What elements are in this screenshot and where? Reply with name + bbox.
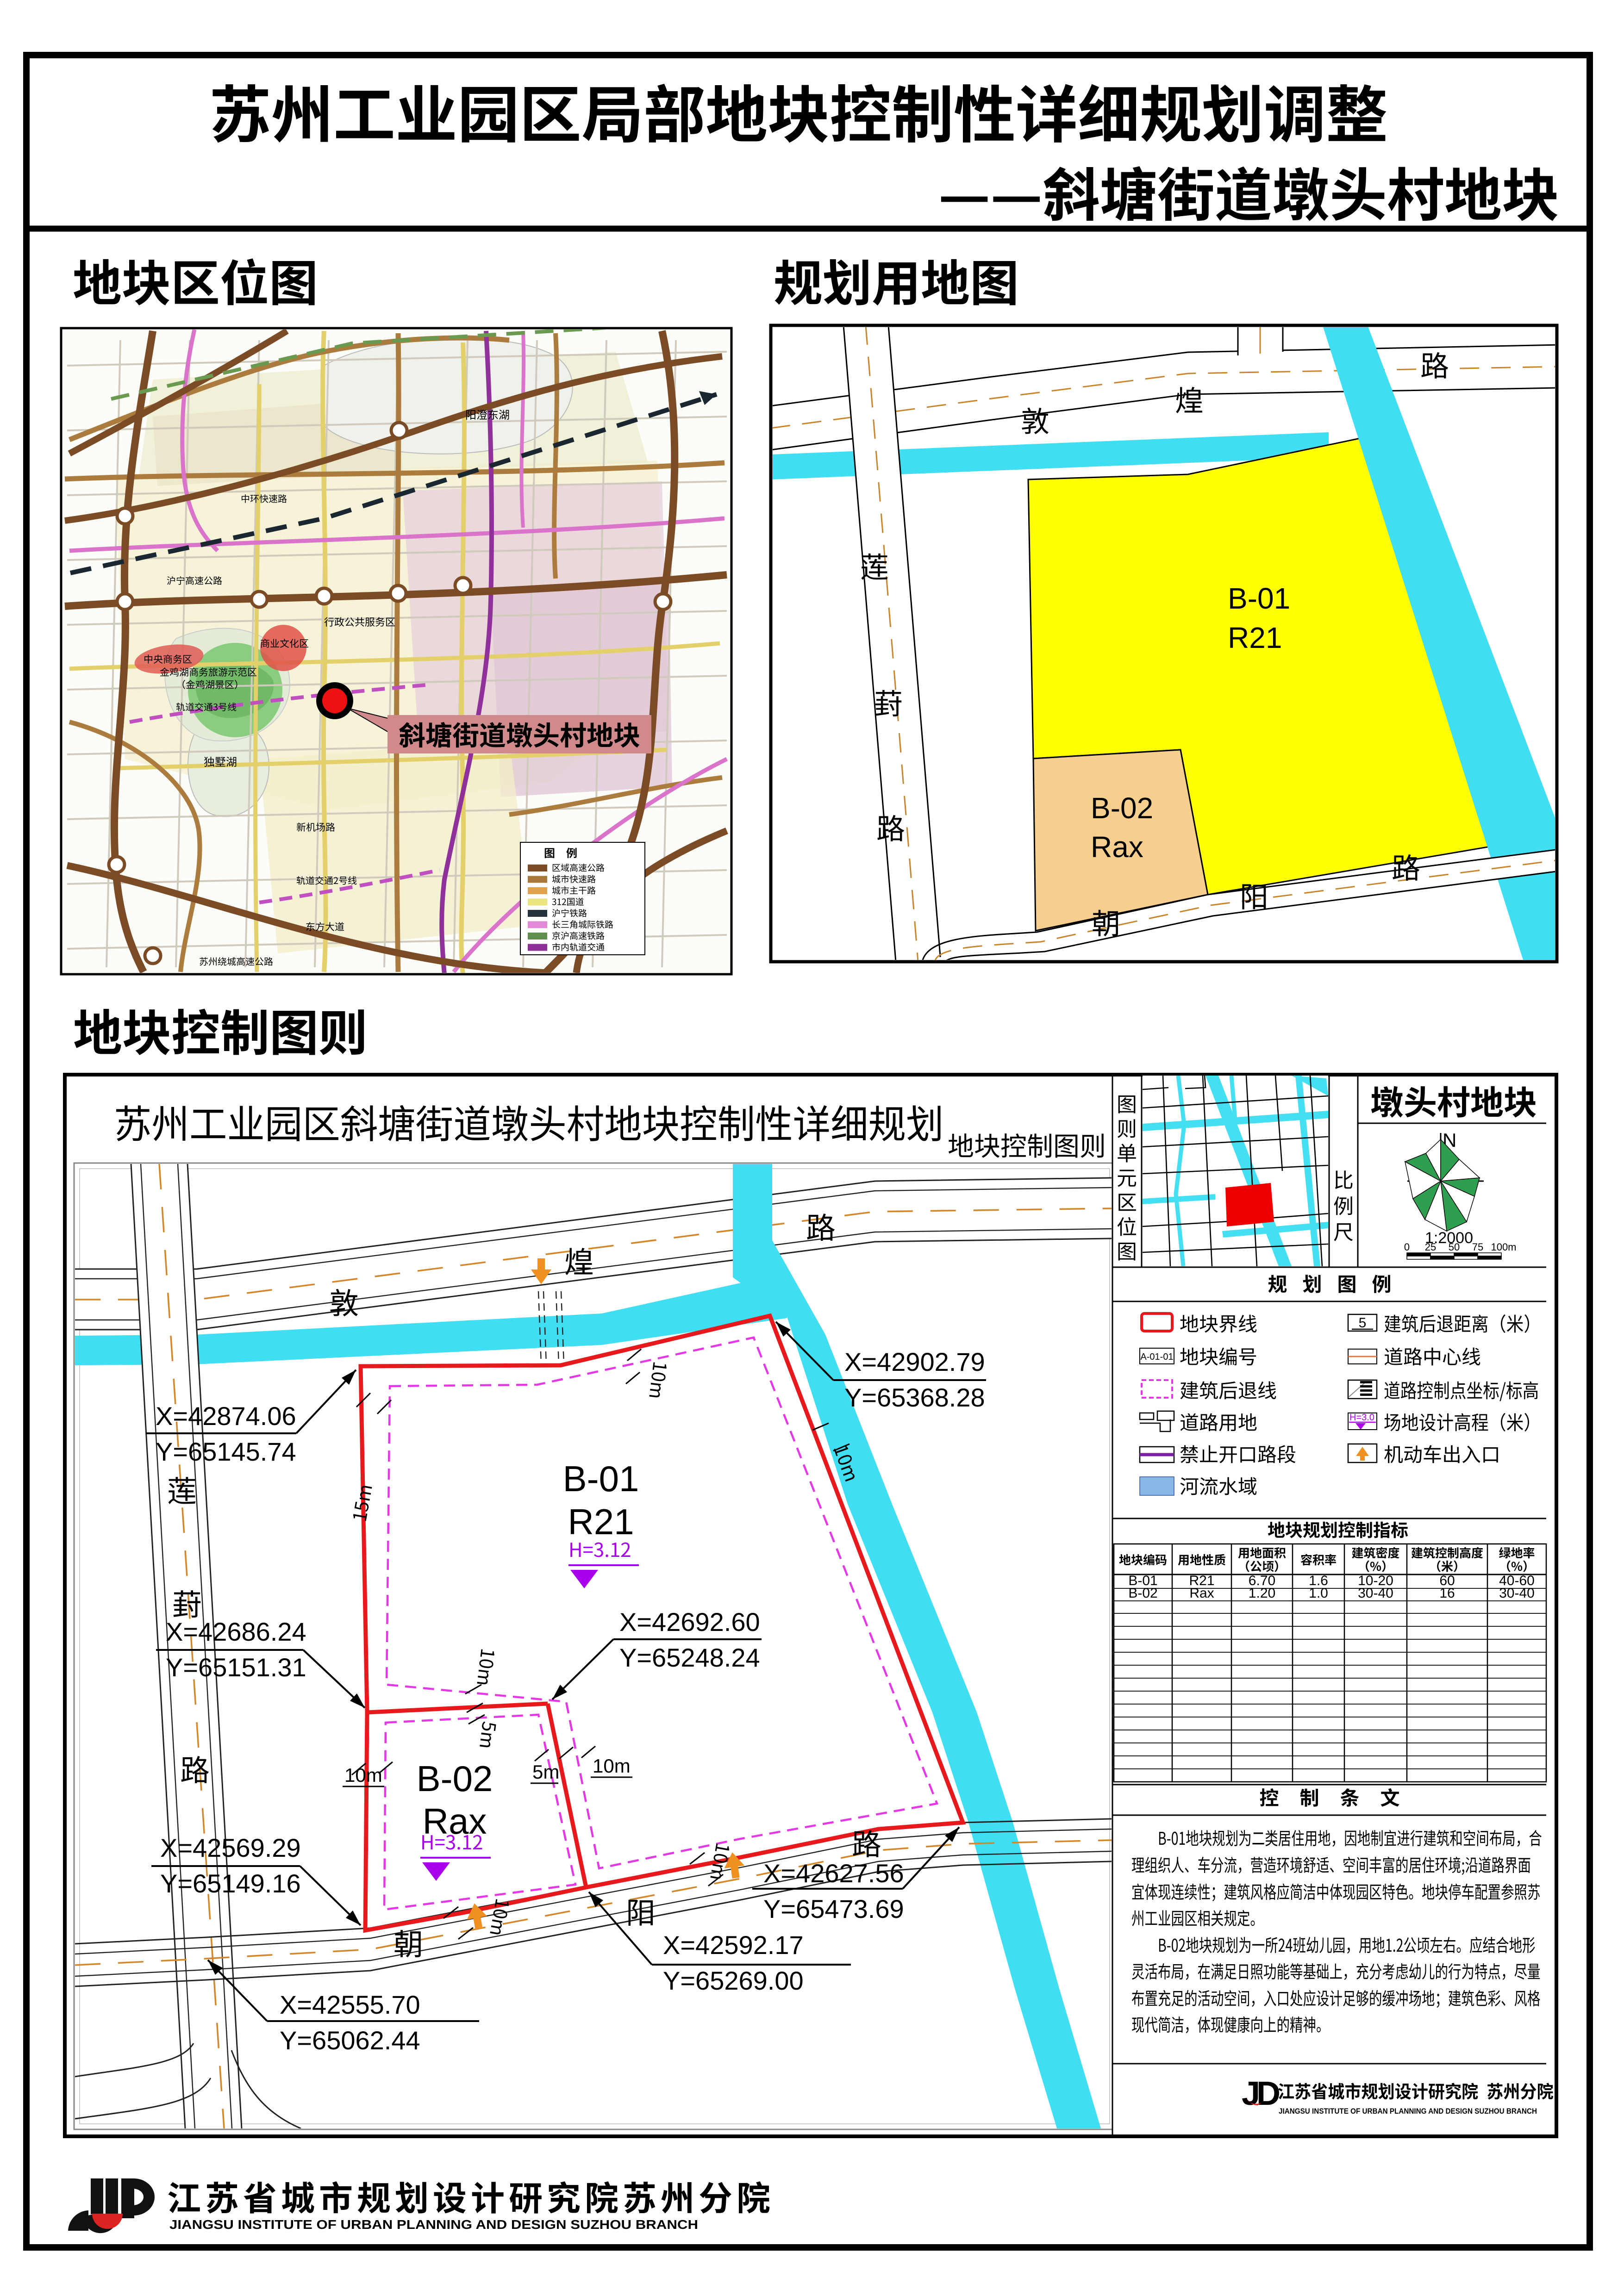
svg-text:X=42902.79: X=42902.79 <box>844 1347 985 1376</box>
svg-text:R21: R21 <box>568 1501 634 1542</box>
svg-text:B-02: B-02 <box>1128 1586 1157 1601</box>
svg-text:X=42874.06: X=42874.06 <box>156 1401 296 1431</box>
svg-text:75: 75 <box>1472 1241 1483 1253</box>
svg-text:Rax: Rax <box>1091 830 1143 864</box>
svg-text:D: D <box>1256 2075 1280 2112</box>
svg-text:Y=65368.28: Y=65368.28 <box>844 1383 985 1412</box>
svg-text:X=42555.70: X=42555.70 <box>280 1990 420 2019</box>
svg-text:JIANGSU INSTITUTE OF URBAN PLA: JIANGSU INSTITUTE OF URBAN PLANNING AND … <box>1279 2107 1537 2116</box>
svg-text:5m: 5m <box>532 1761 559 1783</box>
svg-text:X=42569.29: X=42569.29 <box>160 1833 301 1862</box>
svg-text:JIANGSU INSTITUTE OF URBAN PLA: JIANGSU INSTITUTE OF URBAN PLANNING AND … <box>169 2217 698 2232</box>
svg-text:X=42592.17: X=42592.17 <box>663 1930 804 1960</box>
svg-text:25: 25 <box>1425 1241 1436 1253</box>
svg-text:10m: 10m <box>593 1755 631 1777</box>
svg-text:Y=65062.44: Y=65062.44 <box>280 2026 420 2055</box>
svg-text:R21: R21 <box>1228 621 1282 654</box>
svg-text:B-01: B-01 <box>1228 582 1290 615</box>
svg-text:A-01-01: A-01-01 <box>1140 1352 1173 1362</box>
svg-text:B-02: B-02 <box>1091 791 1153 825</box>
svg-text:30-40: 30-40 <box>1358 1586 1393 1601</box>
svg-text:B-02: B-02 <box>417 1758 493 1799</box>
svg-text:Rax: Rax <box>1189 1586 1214 1601</box>
svg-text:Y=65151.31: Y=65151.31 <box>166 1653 306 1682</box>
svg-text:Y=65145.74: Y=65145.74 <box>156 1437 296 1466</box>
svg-text:X=42692.60: X=42692.60 <box>619 1607 760 1636</box>
svg-text:Y=65473.69: Y=65473.69 <box>763 1894 904 1923</box>
svg-text:X=42686.24: X=42686.24 <box>166 1617 306 1646</box>
svg-text:B-01: B-01 <box>563 1458 639 1499</box>
svg-text:Y=65248.24: Y=65248.24 <box>619 1643 760 1672</box>
svg-text:Y=65149.16: Y=65149.16 <box>160 1869 301 1898</box>
svg-text:H=3.0: H=3.0 <box>1349 1412 1374 1423</box>
svg-text:16: 16 <box>1439 1586 1455 1601</box>
svg-text:0: 0 <box>1404 1241 1410 1253</box>
svg-text:Y=65269.00: Y=65269.00 <box>663 1966 804 1995</box>
svg-text:50: 50 <box>1449 1241 1460 1253</box>
svg-text:5: 5 <box>1359 1315 1367 1331</box>
svg-text:1.20: 1.20 <box>1249 1586 1275 1601</box>
svg-text:X=42627.56: X=42627.56 <box>763 1859 904 1888</box>
svg-text:10m: 10m <box>344 1764 382 1786</box>
svg-text:30-40: 30-40 <box>1499 1586 1535 1601</box>
svg-text:1.0: 1.0 <box>1309 1586 1328 1601</box>
svg-text:100m: 100m <box>1491 1241 1516 1253</box>
